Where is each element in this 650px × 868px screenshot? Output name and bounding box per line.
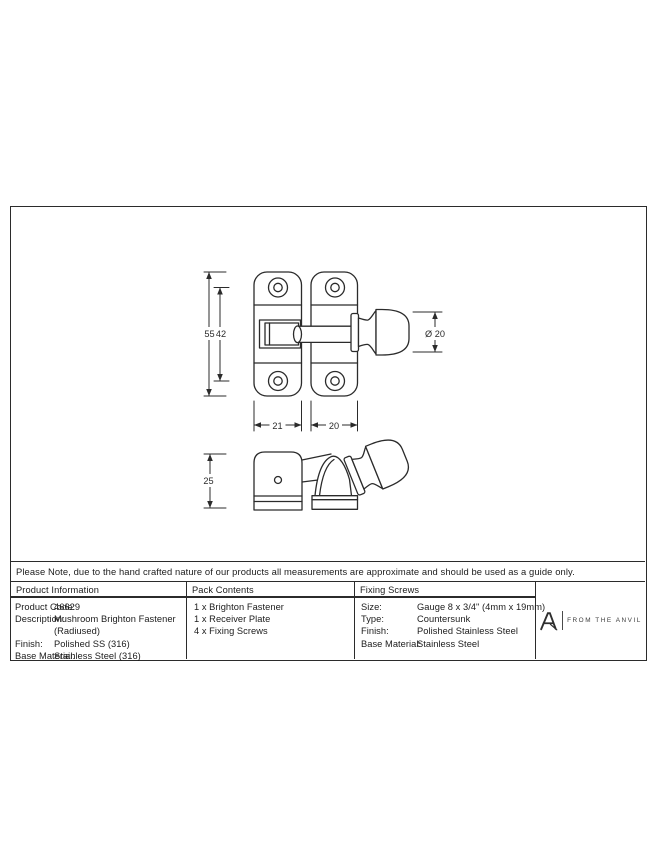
spec-row-finish: Finish:Polished SS (316)	[11, 638, 186, 650]
mushroom-knob-head	[376, 310, 409, 356]
spec-row-description: Description:Mushroom Brighton Fastener	[11, 613, 186, 625]
receiver-base	[312, 496, 358, 510]
pack-item: 1 x Receiver Plate	[194, 613, 354, 625]
dim-knob-diameter-label: Ø 20	[425, 329, 445, 339]
side-knob	[342, 434, 413, 498]
sheet-frame: 55 42 Ø 20 21 20 25 Please Note, due to …	[10, 206, 647, 661]
product-information-column: Product Information Product Code:46629 D…	[11, 582, 187, 659]
spec-value: Gauge 8 x 3/4" (4mm x 19mm)	[417, 602, 545, 612]
knob-neck	[359, 311, 377, 355]
spec-label: Base Material:	[15, 650, 54, 662]
spec-value: (Radiused)	[54, 626, 100, 636]
spec-label: Finish:	[15, 638, 54, 650]
spec-label: Type:	[361, 613, 417, 625]
pack-contents-column: Pack Contents 1 x Brighton Fastener 1 x …	[187, 582, 355, 659]
front-view	[254, 272, 409, 396]
fixing-screws-body: Size:Gauge 8 x 3/4" (4mm x 19mm) Type:Co…	[355, 598, 535, 650]
measurement-note: Please Note, due to the hand crafted nat…	[11, 561, 645, 582]
spec-label: Description:	[15, 613, 54, 625]
spec-value: Countersunk	[417, 614, 470, 624]
spec-row-size: Size:Gauge 8 x 3/4" (4mm x 19mm)	[355, 601, 535, 613]
spec-value: Polished SS (316)	[54, 639, 130, 649]
spec-value: 46629	[54, 602, 80, 612]
spec-label: Finish:	[361, 625, 417, 637]
spec-value: Stainless Steel (316)	[54, 651, 141, 661]
dim-backplate-width-label: 21	[272, 421, 282, 431]
technical-drawing: 55 42 Ø 20 21 20 25	[11, 207, 644, 561]
side-base-block	[254, 452, 302, 510]
pack-contents-body: 1 x Brighton Fastener 1 x Receiver Plate…	[187, 598, 354, 638]
bolt-shaft-cap	[294, 326, 302, 343]
brand-column: FROM THE ANVIL	[536, 582, 645, 659]
spec-row-base-material: Base Material:Stainless Steel (316)	[11, 650, 186, 662]
spec-value: Stainless Steel	[417, 639, 479, 649]
brand-name: FROM THE ANVIL	[567, 617, 642, 624]
spec-label: Base Material:	[361, 638, 417, 650]
anvil-a-icon	[539, 610, 558, 632]
spec-label: Product Code:	[15, 601, 54, 613]
dim-hole-spacing-label: 42	[216, 329, 226, 339]
product-info-table: Product Information Product Code:46629 D…	[11, 582, 645, 659]
spec-value: Polished Stainless Steel	[417, 626, 518, 636]
pack-item: 4 x Fixing Screws	[194, 625, 354, 637]
spec-row-type: Type:Countersunk	[355, 613, 535, 625]
brand-logo: FROM THE ANVIL	[536, 582, 645, 659]
knob-collar	[351, 314, 359, 352]
product-information-header: Product Information	[11, 582, 186, 598]
dim-receiver-width-label: 20	[329, 421, 339, 431]
bolt-shaft-fill	[297, 327, 351, 343]
spec-row-description-cont: (Radiused)	[11, 625, 186, 637]
dim-overall-height-label: 55	[204, 329, 214, 339]
pack-item: 1 x Brighton Fastener	[194, 601, 354, 613]
spec-row-product-code: Product Code:46629	[11, 601, 186, 613]
fixing-screws-header: Fixing Screws	[355, 582, 535, 598]
dim-depth-label: 25	[203, 476, 213, 486]
spec-value: Mushroom Brighton Fastener	[54, 614, 176, 624]
spec-sheet-page: { "note": "Please Note, due to the hand …	[0, 0, 650, 868]
spec-row-screw-base-material: Base Material:Stainless Steel	[355, 638, 535, 650]
fixing-screws-column: Fixing Screws Size:Gauge 8 x 3/4" (4mm x…	[355, 582, 536, 659]
pack-contents-header: Pack Contents	[187, 582, 354, 598]
spec-row-screw-finish: Finish:Polished Stainless Steel	[355, 625, 535, 637]
product-information-body: Product Code:46629 Description:Mushroom …	[11, 598, 186, 663]
side-view	[254, 434, 413, 510]
brand-divider	[562, 611, 563, 630]
spec-label: Size:	[361, 601, 417, 613]
